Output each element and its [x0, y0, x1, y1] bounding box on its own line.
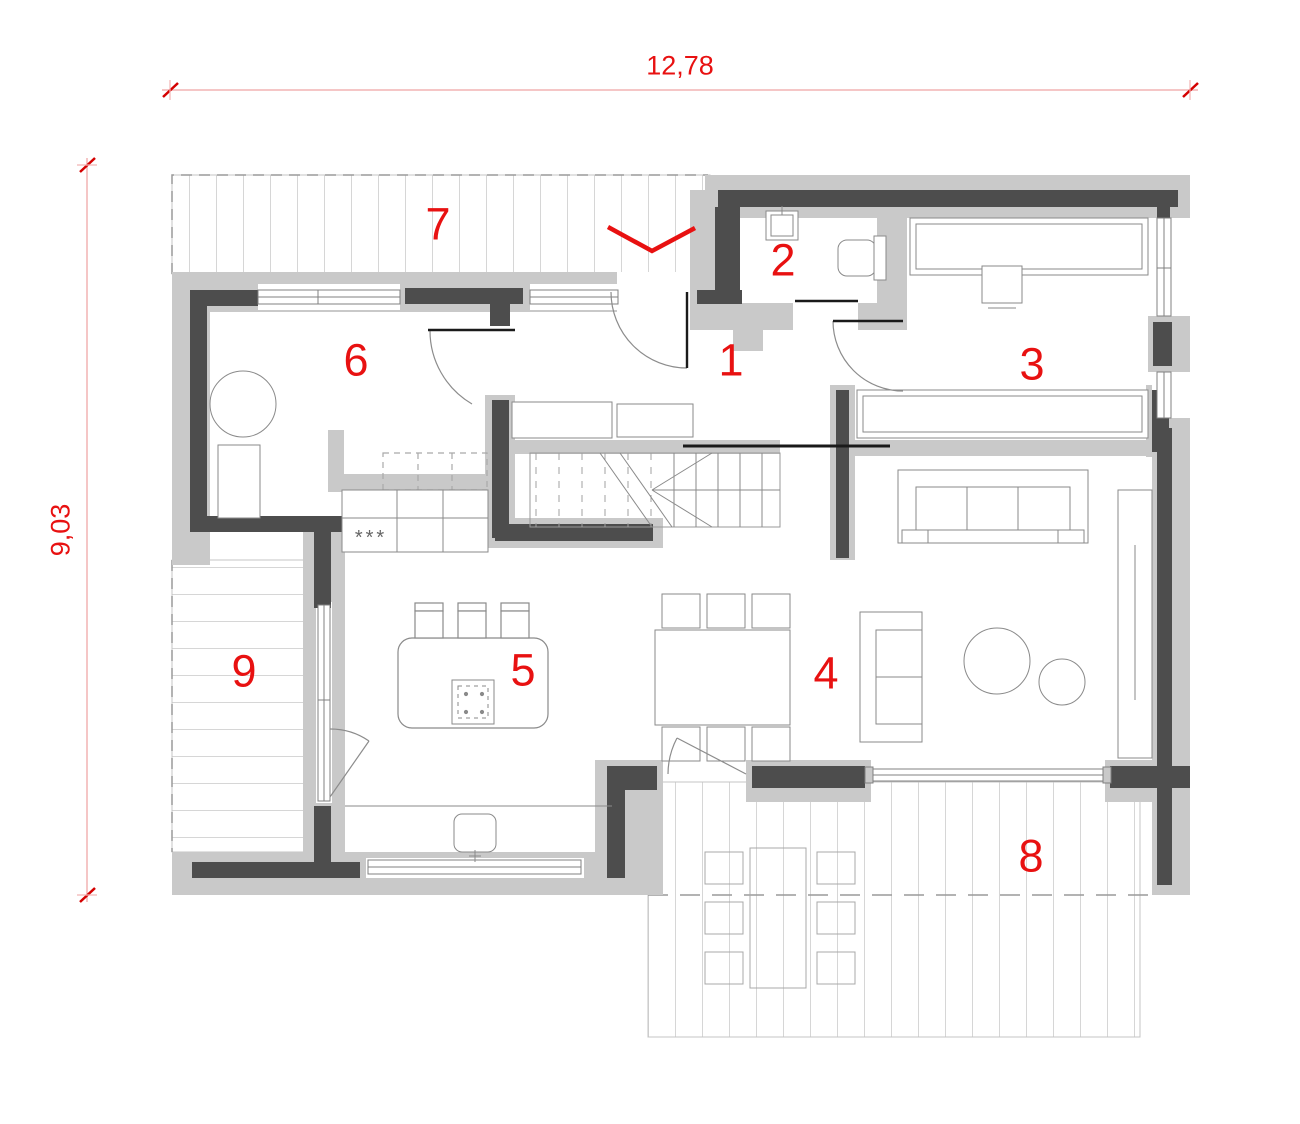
window-east-upper: [1157, 218, 1171, 316]
room-label-3: 3: [1019, 342, 1044, 387]
glass-wall-south-living: [865, 767, 1111, 783]
round-table: [210, 371, 276, 437]
armchair: [860, 612, 922, 742]
room-label-9: 9: [231, 649, 256, 694]
window-north-mid: [530, 290, 618, 304]
coffee-table-large: [964, 628, 1030, 694]
room-1-hall: [690, 330, 850, 445]
room-label-1: 1: [718, 338, 743, 383]
dining-set: [655, 594, 790, 761]
sofa: [898, 470, 1088, 543]
room-label-8: 8: [1018, 834, 1043, 879]
wardrobe-top: [910, 218, 1148, 275]
window-north-left: [258, 290, 400, 304]
dimension-depth-label: 9,03: [48, 504, 75, 557]
desk: [982, 266, 1022, 308]
wardrobe-bottom: [857, 390, 1148, 438]
floor-plan-canvas: 12,78 9,03 1 2 3 4 5 6 7 8 9 ***: [0, 0, 1300, 1124]
dimension-width-label: 12,78: [646, 53, 714, 80]
bar-stools: [415, 603, 529, 638]
hall-cabinets: [512, 402, 693, 438]
tv-sideboard: [1118, 490, 1152, 758]
floor-plan-drawing: [0, 0, 1300, 1124]
kitchen-appliance-symbol: ***: [355, 528, 387, 548]
room-9-terrace: [172, 560, 323, 852]
room-label-7: 7: [425, 202, 450, 247]
coffee-table-small: [1039, 659, 1085, 705]
room-label-2: 2: [770, 238, 795, 283]
window-east-lower: [1157, 372, 1171, 418]
wc-toilet: [838, 236, 886, 280]
room-8-terrace: [648, 782, 1140, 1037]
rug: [218, 445, 260, 518]
room-label-6: 6: [343, 338, 368, 383]
room-label-4: 4: [813, 651, 838, 696]
window-west-kitchen: [318, 605, 330, 801]
room-label-5: 5: [510, 648, 535, 693]
window-south-kitchen: [368, 860, 581, 874]
cooktop: [452, 680, 494, 724]
